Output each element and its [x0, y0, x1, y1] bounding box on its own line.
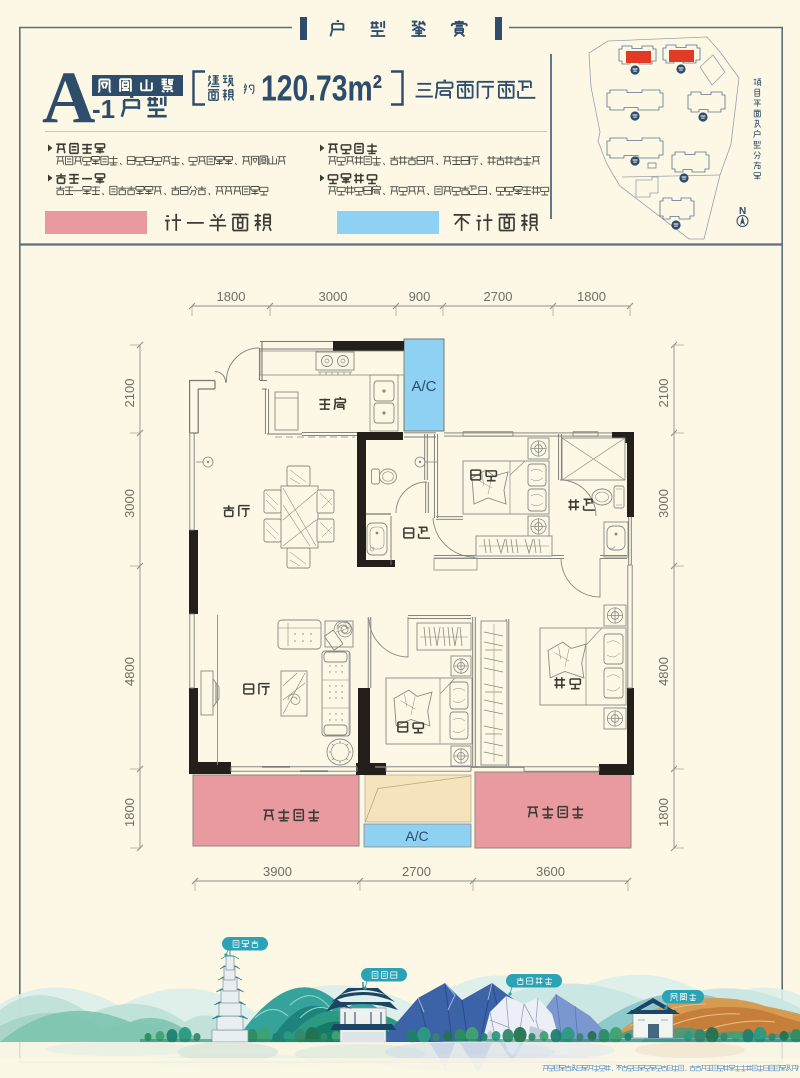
svg-text:A/C: A/C: [405, 828, 428, 844]
svg-text:3000: 3000: [656, 489, 671, 518]
svg-text:3900: 3900: [263, 864, 292, 879]
svg-text:3000: 3000: [319, 289, 348, 304]
svg-text:120.73m²: 120.73m²: [261, 68, 382, 109]
svg-text:A/C: A/C: [411, 378, 436, 395]
svg-text:2700: 2700: [402, 864, 431, 879]
svg-text:1800: 1800: [217, 289, 246, 304]
svg-text:4800: 4800: [656, 657, 671, 686]
svg-text:900: 900: [409, 289, 431, 304]
svg-text:1800: 1800: [656, 798, 671, 827]
svg-text:A: A: [42, 57, 95, 139]
svg-text:3600: 3600: [536, 864, 565, 879]
svg-text:-1: -1: [92, 94, 115, 124]
svg-text:1800: 1800: [577, 289, 606, 304]
svg-text:1800: 1800: [122, 798, 137, 827]
svg-text:4800: 4800: [122, 657, 137, 686]
svg-text:2100: 2100: [122, 379, 137, 408]
svg-text:2700: 2700: [484, 289, 513, 304]
svg-text:2100: 2100: [656, 379, 671, 408]
svg-text:3000: 3000: [122, 489, 137, 518]
